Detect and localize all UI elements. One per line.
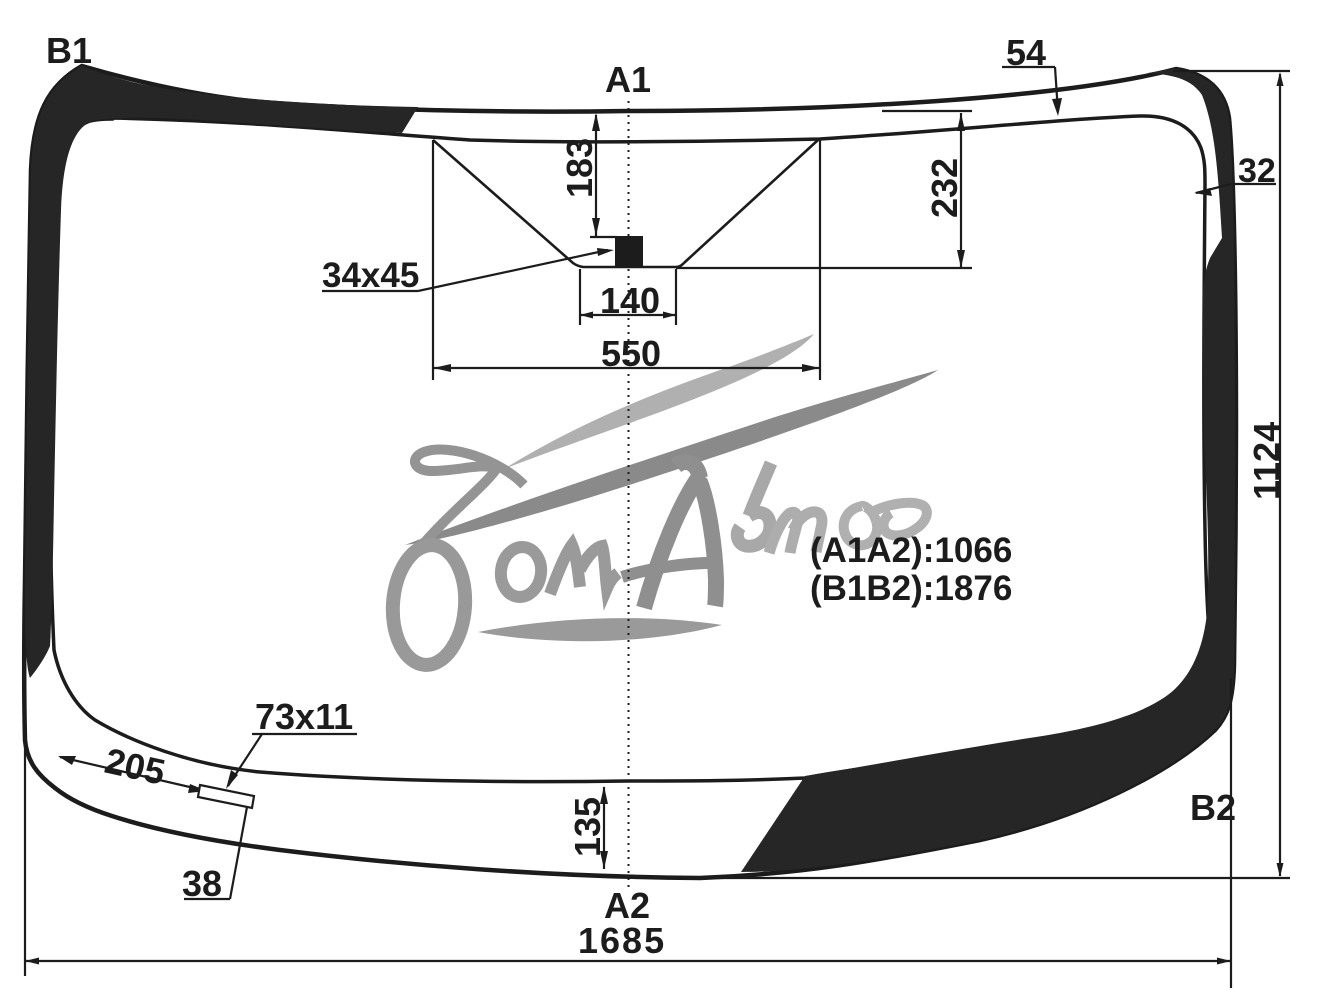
- svg-text:232: 232: [924, 158, 965, 218]
- svg-text:A1: A1: [605, 59, 651, 100]
- svg-text:183: 183: [559, 138, 600, 198]
- svg-text:550: 550: [601, 333, 661, 374]
- svg-text:B2: B2: [1190, 787, 1236, 828]
- svg-text:1685: 1685: [578, 920, 666, 961]
- svg-text:135: 135: [567, 797, 608, 857]
- svg-text:73x11: 73x11: [255, 696, 353, 737]
- svg-text:140: 140: [600, 280, 660, 321]
- svg-text:A2: A2: [604, 885, 650, 926]
- svg-text:1124: 1124: [1246, 422, 1287, 500]
- svg-text:(A1A2):1066: (A1A2):1066: [810, 531, 1012, 570]
- svg-text:34x45: 34x45: [322, 256, 419, 295]
- svg-text:B1: B1: [46, 30, 92, 71]
- svg-text:38: 38: [182, 863, 222, 904]
- svg-text:(B1B2):1876: (B1B2):1876: [810, 569, 1012, 608]
